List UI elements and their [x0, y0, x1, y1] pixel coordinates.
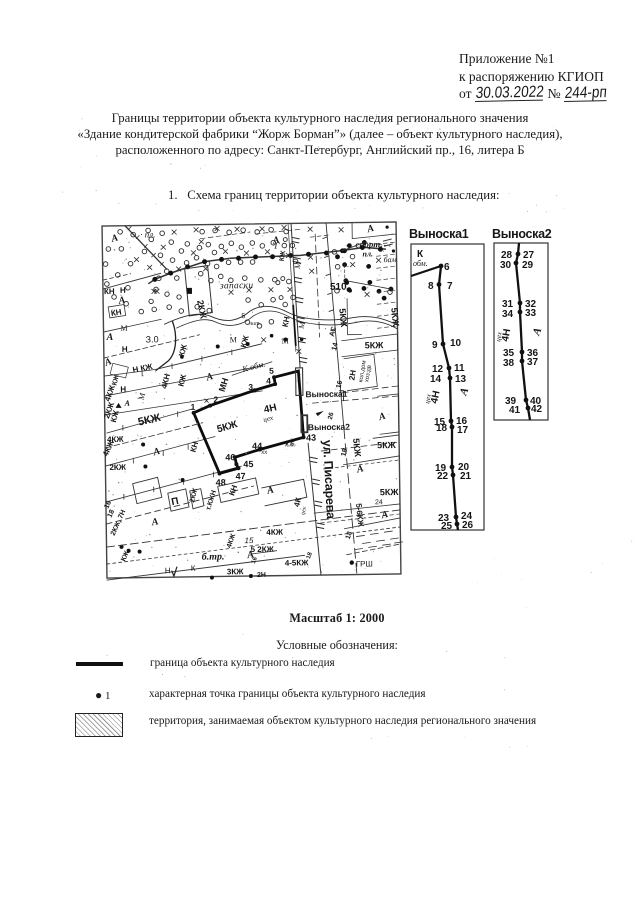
svg-text:М: М: [293, 261, 303, 270]
svg-text:37: 37: [527, 357, 539, 368]
svg-text:13: 13: [455, 374, 467, 385]
svg-text:· пл.: · пл.: [140, 229, 155, 239]
svg-text:А: А: [457, 386, 471, 398]
svg-text:Н: Н: [165, 566, 171, 575]
svg-text:24: 24: [375, 499, 383, 506]
svg-text:14: 14: [331, 342, 340, 351]
svg-text:42: 42: [531, 404, 543, 415]
svg-text:Х.Б.: Х.Б.: [284, 441, 296, 447]
svg-text:КЖ: КЖ: [177, 343, 189, 358]
svg-text:47: 47: [235, 471, 245, 481]
svg-text:45: 45: [243, 459, 253, 469]
svg-text:А: А: [530, 326, 544, 338]
svg-text:Н КЖ: Н КЖ: [132, 362, 154, 375]
svg-text:3: 3: [248, 382, 253, 392]
svg-text:цех: цех: [300, 506, 308, 516]
svg-text:18: 18: [436, 423, 448, 434]
svg-text:43: 43: [306, 433, 316, 443]
svg-text:41: 41: [509, 405, 521, 416]
svg-text:3КЖ: 3КЖ: [227, 567, 244, 576]
svg-text:10: 10: [450, 338, 462, 349]
svg-text:А: А: [123, 399, 130, 408]
svg-text:11: 11: [454, 363, 465, 374]
svg-text:цех: цех: [262, 414, 274, 424]
svg-text:т.КЖН: т.КЖН: [205, 490, 218, 512]
svg-text:18: 18: [345, 531, 354, 541]
svg-text:П: П: [170, 496, 179, 508]
svg-text:А: А: [204, 371, 215, 384]
svg-text:б.тр.: б.тр.: [202, 551, 225, 562]
svg-text:21: 21: [460, 471, 472, 482]
svg-text:бам: бам: [383, 255, 396, 264]
svg-text:КН: КН: [227, 484, 239, 497]
svg-text:М: М: [282, 336, 289, 345]
svg-text:29: 29: [522, 260, 534, 271]
svg-text:запаски: запаски: [219, 281, 254, 291]
svg-text:Н: Н: [120, 385, 126, 394]
svg-text:510: 510: [330, 282, 347, 293]
svg-text:6: 6: [444, 262, 450, 273]
svg-text:8: 8: [428, 281, 434, 292]
svg-text:16: 16: [251, 556, 259, 565]
svg-text:ГРШ: ГРШ: [356, 559, 373, 568]
svg-text:15: 15: [244, 536, 254, 545]
svg-text:4-5КЖ: 4-5КЖ: [285, 558, 310, 567]
svg-text:46: 46: [225, 452, 235, 462]
svg-text:ул. Писарева: ул. Писарева: [320, 439, 338, 520]
svg-text:пл.: пл.: [362, 249, 373, 258]
svg-text:А: А: [109, 232, 120, 245]
svg-text:17: 17: [457, 425, 469, 436]
svg-text:КЖ: КЖ: [239, 334, 251, 349]
svg-text:КН: КН: [281, 315, 292, 327]
svg-text:АС: АС: [329, 326, 338, 337]
svg-text:2Н: 2Н: [347, 369, 358, 381]
svg-text:КЖ: КЖ: [109, 409, 121, 424]
svg-text:5КЖ: 5КЖ: [365, 340, 385, 350]
svg-text:обм.: обм.: [413, 259, 428, 268]
svg-text:КН: КН: [104, 287, 115, 296]
svg-text:5КЖ: 5КЖ: [216, 419, 240, 435]
svg-text:5КЖ: 5КЖ: [380, 487, 400, 497]
svg-text:7: 7: [447, 281, 453, 292]
svg-text:4КН: 4КН: [160, 373, 172, 390]
svg-text:А: А: [379, 509, 389, 521]
svg-text:14: 14: [430, 374, 442, 385]
svg-text:КЖ: КЖ: [279, 250, 288, 262]
svg-text:25: 25: [441, 521, 453, 532]
svg-text:А: А: [377, 411, 388, 424]
svg-text:5КЖ: 5КЖ: [351, 438, 363, 458]
svg-text:4КЖ: 4КЖ: [226, 532, 238, 549]
svg-text:48: 48: [216, 477, 226, 487]
svg-text:38: 38: [503, 358, 515, 369]
svg-text:33: 33: [525, 308, 537, 319]
svg-text:Н: Н: [120, 286, 126, 295]
svg-text:26: 26: [327, 411, 336, 420]
svg-text:1: 1: [191, 402, 196, 412]
svg-text:хх: хх: [261, 450, 267, 456]
svg-text:лит.: лит.: [248, 321, 261, 327]
svg-text:4: 4: [266, 376, 271, 386]
svg-text:4КЖ: 4КЖ: [266, 528, 283, 537]
svg-text:2КЖ: 2КЖ: [195, 299, 208, 320]
svg-text:А: А: [365, 223, 376, 236]
svg-text:М: М: [230, 335, 237, 344]
svg-text:КН: КН: [189, 440, 201, 453]
svg-text:Выноска1: Выноска1: [409, 227, 469, 241]
svg-text:З.0: З.0: [146, 334, 159, 344]
svg-text:18: 18: [340, 448, 349, 457]
svg-text:34: 34: [502, 309, 514, 320]
svg-text:30: 30: [500, 260, 512, 271]
svg-text:К обм.: К обм.: [240, 358, 266, 374]
svg-text:М: М: [137, 392, 147, 401]
svg-text:Выноска1: Выноска1: [305, 389, 347, 400]
svg-text:Выноска2: Выноска2: [308, 422, 350, 433]
svg-text:М: М: [297, 321, 307, 330]
svg-text:К: К: [191, 564, 196, 573]
svg-text:А: А: [150, 516, 160, 528]
svg-text:5КЖ: 5КЖ: [137, 412, 162, 429]
svg-text:А: А: [106, 332, 114, 343]
svg-text:18: 18: [107, 509, 117, 519]
svg-text:26: 26: [462, 520, 474, 531]
svg-text:18: 18: [306, 551, 314, 560]
svg-text:2КЖ: 2КЖ: [189, 487, 200, 503]
svg-text:МН: МН: [217, 377, 231, 393]
svg-text:Выноска2: Выноска2: [492, 227, 552, 241]
svg-text:5: 5: [269, 366, 274, 376]
svg-text:КЖ: КЖ: [177, 373, 189, 388]
svg-text:5КЖ: 5КЖ: [389, 307, 401, 327]
svg-text:5: 5: [241, 313, 245, 320]
svg-text:5-6КЖ: 5-6КЖ: [354, 503, 365, 528]
svg-text:9: 9: [432, 340, 438, 351]
svg-text:2: 2: [213, 394, 218, 404]
svg-text:22: 22: [437, 471, 449, 482]
svg-text:5КЖ: 5КЖ: [377, 440, 397, 450]
